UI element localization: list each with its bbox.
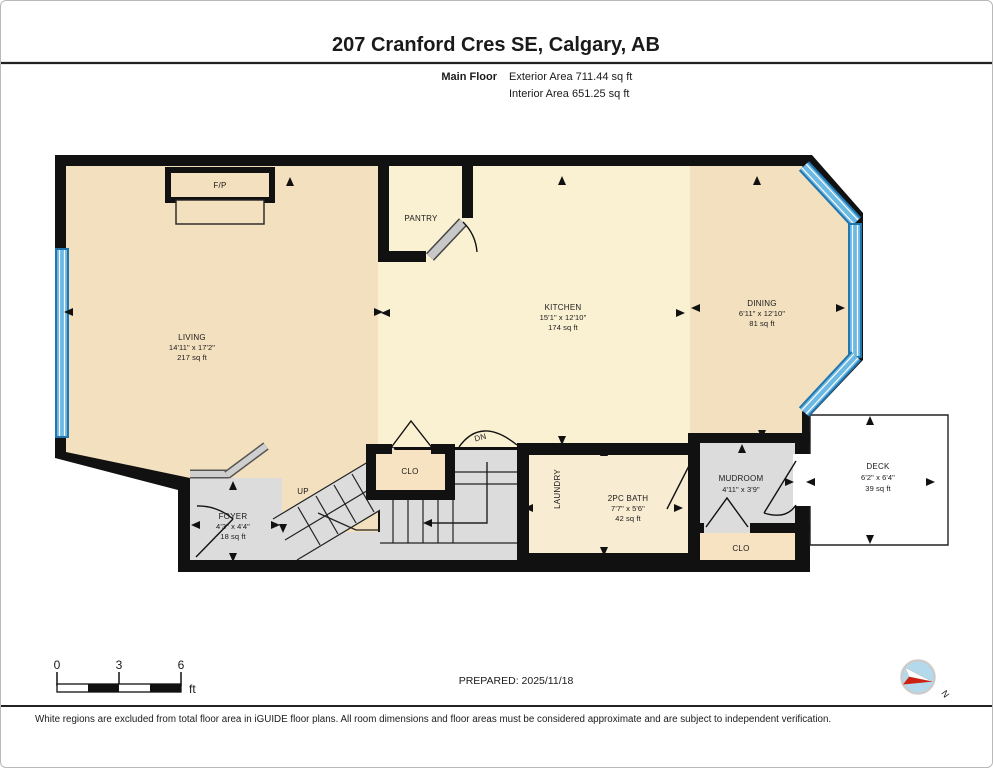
north-label: N (939, 688, 951, 699)
scale-unit: ft (189, 682, 196, 696)
scale-bar: 0 3 6 ft (54, 658, 197, 696)
header: 207 Cranford Cres SE, Calgary, AB Main F… (0, 34, 993, 100)
svg-text:81 sq ft: 81 sq ft (749, 319, 775, 328)
svg-text:2PC BATH: 2PC BATH (608, 494, 649, 503)
floorplan: LIVING 14'11" x 17'2" 217 sq ft KITCHEN … (55, 155, 948, 572)
scale-tick-0: 0 (54, 658, 61, 672)
svg-text:FOYER: FOYER (219, 512, 248, 521)
room-label-closet-mud: CLO (732, 544, 749, 553)
room-mudroom-floor (700, 443, 795, 523)
fireplace (168, 170, 272, 224)
floorplan-page: 207 Cranford Cres SE, Calgary, AB Main F… (0, 0, 993, 768)
window-left (55, 248, 69, 438)
scale-tick-3: 3 (116, 658, 123, 672)
svg-text:14'11" x 17'2": 14'11" x 17'2" (169, 343, 215, 352)
svg-text:DECK: DECK (866, 462, 890, 471)
floorplan-canvas: 207 Cranford Cres SE, Calgary, AB Main F… (0, 0, 993, 768)
svg-text:4'11" x 3'9": 4'11" x 3'9" (722, 485, 760, 494)
room-label-closet-hall: CLO (401, 467, 418, 476)
prepared-date: PREPARED: 2025/11/18 (459, 675, 574, 687)
room-label-foyer: FOYER 4'3" x 4'4" 18 sq ft (216, 512, 250, 541)
disclaimer: White regions are excluded from total fl… (35, 714, 831, 725)
svg-text:15'1" x 12'10": 15'1" x 12'10" (540, 313, 587, 322)
room-label-laundry: LAUNDRY (553, 469, 562, 509)
svg-text:7'7" x 5'6": 7'7" x 5'6" (611, 504, 645, 513)
svg-text:39 sq ft: 39 sq ft (865, 484, 891, 493)
window-bay-right (848, 223, 862, 358)
exterior-area: Exterior Area 711.44 sq ft (509, 71, 632, 83)
room-kitchen-floor (378, 166, 690, 447)
svg-text:6'2" x 6'4": 6'2" x 6'4" (861, 473, 895, 482)
room-label-fireplace: F/P (213, 181, 226, 190)
svg-text:MUDROOM: MUDROOM (719, 474, 764, 483)
interior-area: Interior Area 651.25 sq ft (509, 88, 629, 100)
svg-text:DINING: DINING (747, 299, 777, 308)
scale-tick-6: 6 (178, 658, 185, 672)
svg-text:KITCHEN: KITCHEN (545, 303, 582, 312)
svg-text:217 sq ft: 217 sq ft (177, 353, 207, 362)
room-label-pantry: PANTRY (404, 214, 438, 223)
svg-text:18 sq ft: 18 sq ft (220, 532, 246, 541)
svg-text:4'3" x 4'4": 4'3" x 4'4" (216, 522, 250, 531)
floor-label: Main Floor (441, 71, 497, 83)
page-title: 207 Cranford Cres SE, Calgary, AB (332, 34, 660, 56)
svg-text:42 sq ft: 42 sq ft (615, 514, 641, 523)
svg-text:LIVING: LIVING (178, 333, 206, 342)
compass-icon: N (901, 661, 951, 700)
svg-text:174 sq ft: 174 sq ft (548, 323, 578, 332)
svg-text:6'11" x 12'10": 6'11" x 12'10" (739, 309, 785, 318)
stairs-up-label: UP (297, 487, 309, 496)
